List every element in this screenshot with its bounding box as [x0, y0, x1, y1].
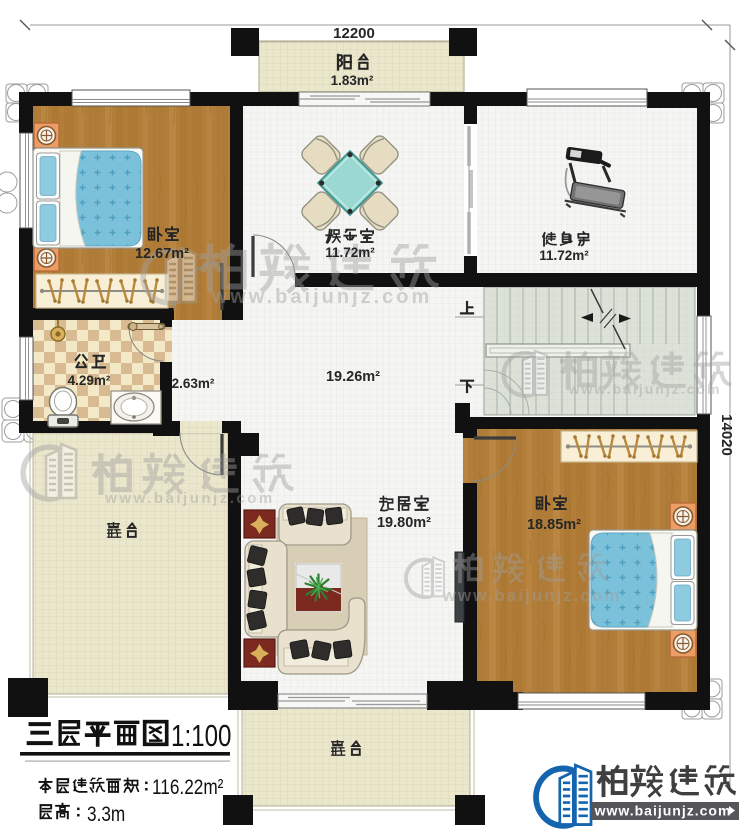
svg-text:19.80m²: 19.80m²: [377, 515, 431, 531]
svg-text:www.baijunjz.com: www.baijunjz.com: [442, 586, 622, 605]
svg-text:1:100: 1:100: [171, 718, 231, 753]
svg-text:www.baijunjz.com: www.baijunjz.com: [104, 490, 274, 507]
svg-text:3.3m: 3.3m: [87, 804, 125, 827]
svg-text:www.baijunjz.com: www.baijunjz.com: [594, 803, 732, 819]
svg-text:1.83m²: 1.83m²: [331, 73, 374, 88]
svg-text:2.63m²: 2.63m²: [172, 376, 215, 391]
svg-text:www.baijunjz.com: www.baijunjz.com: [568, 381, 722, 397]
svg-text:4.29m²: 4.29m²: [68, 373, 111, 388]
svg-text:19.26m²: 19.26m²: [326, 369, 380, 385]
svg-text:116.22m²: 116.22m²: [152, 777, 224, 800]
svg-text:11.72m²: 11.72m²: [325, 245, 375, 260]
svg-text:11.72m²: 11.72m²: [539, 248, 589, 263]
svg-text:www.baijunjz.com: www.baijunjz.com: [211, 286, 433, 308]
svg-text:12200: 12200: [333, 25, 375, 42]
svg-text:18.85m²: 18.85m²: [527, 517, 581, 533]
svg-text:14020: 14020: [718, 414, 735, 456]
svg-text:12.67m²: 12.67m²: [135, 246, 189, 262]
